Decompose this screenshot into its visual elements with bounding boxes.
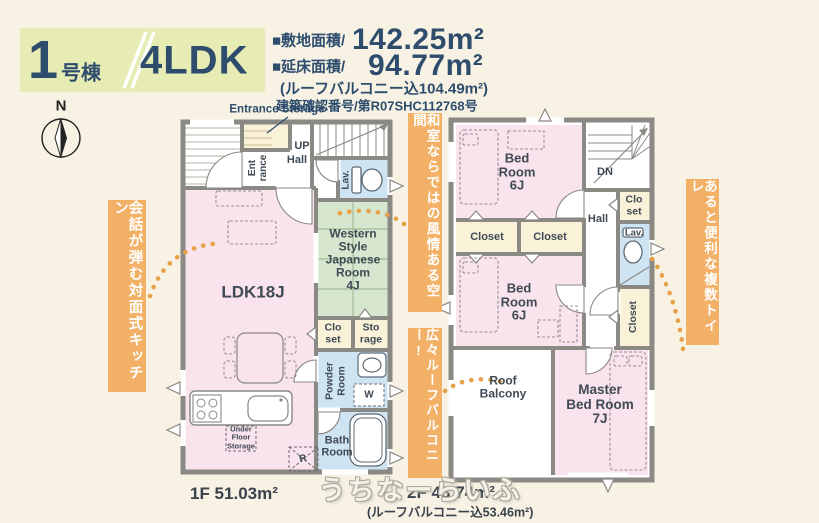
- entrance-storage-label: Entrance Storage: [229, 104, 324, 117]
- kitchen-counter-icon: [190, 391, 292, 425]
- storage1-label: Sto rage: [360, 322, 382, 346]
- unit-number: 1: [28, 29, 58, 91]
- under-floor-storage-label: Under Floor Storage: [227, 426, 255, 451]
- closet-small-label: Clo set: [626, 194, 643, 218]
- land-area-label: ■敷地面積/: [272, 30, 345, 51]
- washer-label: W: [364, 389, 373, 400]
- entrance-label: Ent rance: [247, 155, 269, 182]
- closet-a-label: Closet: [470, 231, 504, 243]
- balcony-feature-banner: 広々ルーフバルコニー!: [408, 328, 442, 478]
- closet-vertical-label: Closet: [628, 301, 640, 333]
- closet-b-label: Closet: [533, 231, 567, 243]
- unit-suffix: 号棟: [61, 57, 101, 86]
- bedroom1-label: Bed Room 6J: [499, 152, 536, 193]
- bathtub-icon: [350, 414, 386, 466]
- vanity-sink-icon: [358, 353, 386, 377]
- floor1-plan: [167, 117, 403, 475]
- lav1-label: Lav.: [340, 170, 351, 189]
- toilet1-icon: [352, 167, 382, 193]
- ldk-label: LDK18J: [221, 282, 284, 301]
- master-bedroom-label: Master Bed Room 7J: [566, 383, 634, 427]
- lav2-label: Lav.: [625, 229, 643, 240]
- dn-label: DN: [597, 166, 613, 178]
- kitchen-feature-banner: 会話が弾む対面式キッチン: [108, 200, 146, 392]
- japanese-room-label: Western Style Japanese Room 4J: [326, 228, 381, 293]
- powder-room-label: Powder Room: [324, 362, 348, 400]
- floorplan-flyer: { "colors": { "background": "#f7f2e4", "…: [0, 0, 819, 523]
- up-label: UP: [294, 140, 309, 152]
- hall1-label: Hall: [287, 154, 307, 166]
- floor-area-label: ■延床面積/: [272, 56, 345, 77]
- stove-icon: [193, 395, 221, 422]
- layout-type: 4LDK: [140, 39, 248, 84]
- closet1-label: Clo set: [325, 322, 342, 346]
- floor1-area-label: 1F 51.03m²: [190, 484, 278, 504]
- toilet-feature-banner: あると便利な複数トイレ: [686, 179, 719, 345]
- watermark: うちなーらいふ: [319, 469, 522, 508]
- bath-room-label: Bath Room: [321, 435, 352, 460]
- roof-balcony-label: Roof Balcony: [480, 375, 527, 402]
- compass-north-label: N: [56, 99, 67, 116]
- bedroom2-label: Bed Room 6J: [501, 282, 538, 323]
- compass-icon: [36, 112, 86, 164]
- hall2-label: Hall: [588, 213, 608, 225]
- washitsu-feature-banner: 和室ならではの風情ある空間: [408, 113, 442, 312]
- entrance-storage-room: [242, 122, 290, 150]
